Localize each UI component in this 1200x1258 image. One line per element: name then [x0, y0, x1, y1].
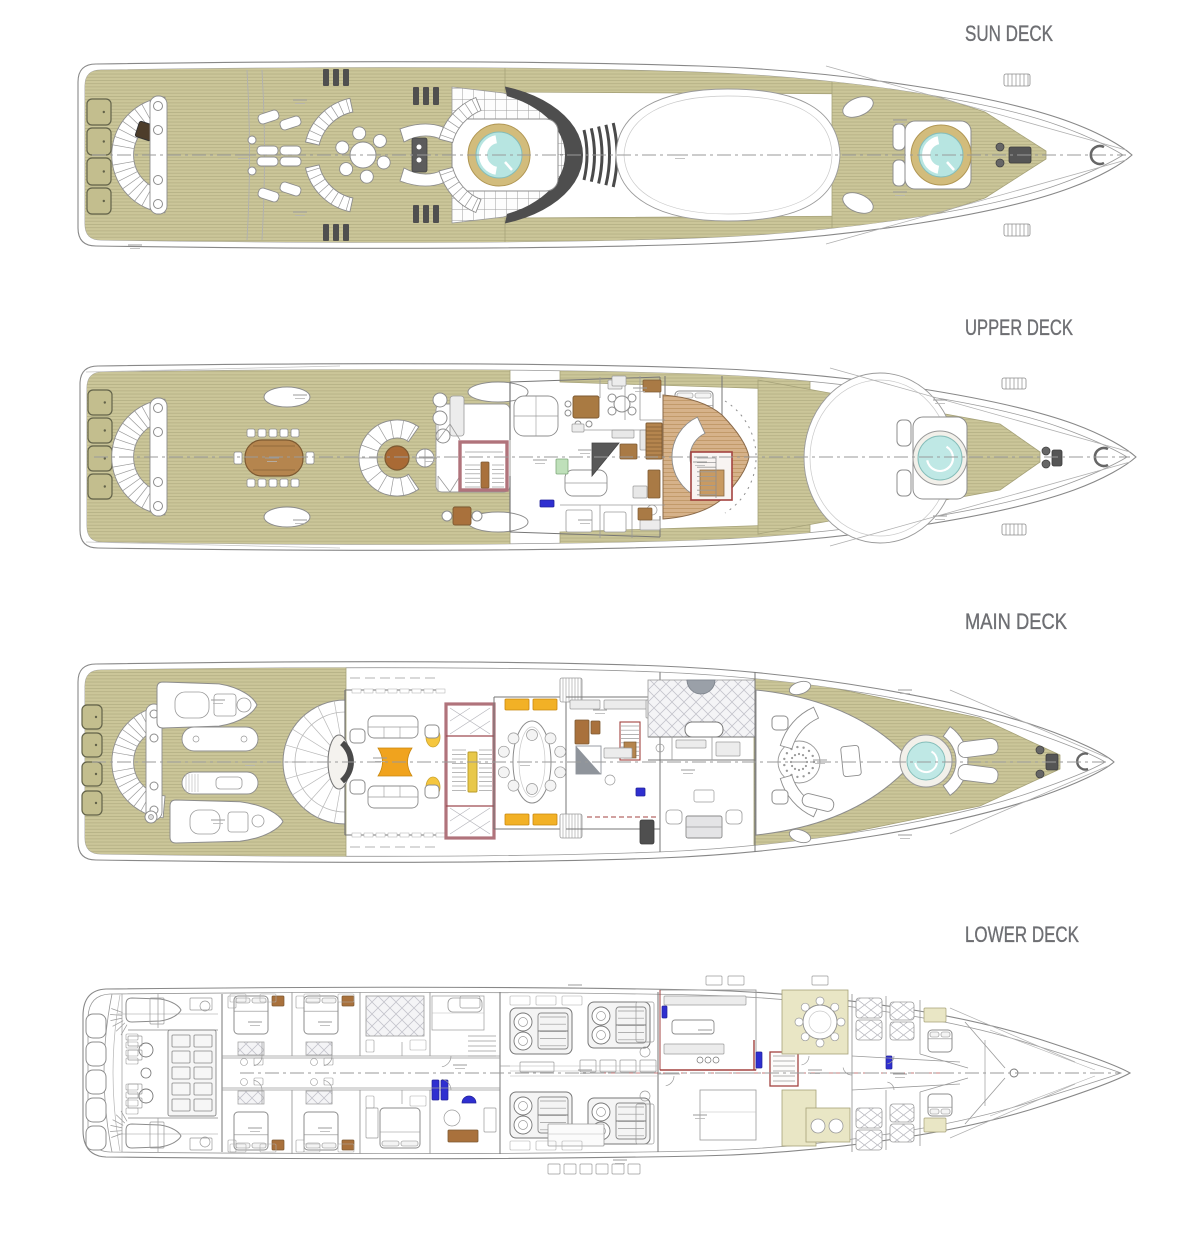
svg-text:MAIN DECK: MAIN DECK [965, 609, 1067, 634]
svg-text:LOWER DECK: LOWER DECK [965, 922, 1079, 947]
svg-text:UPPER DECK: UPPER DECK [965, 315, 1073, 340]
svg-text:SUN DECK: SUN DECK [965, 21, 1053, 46]
